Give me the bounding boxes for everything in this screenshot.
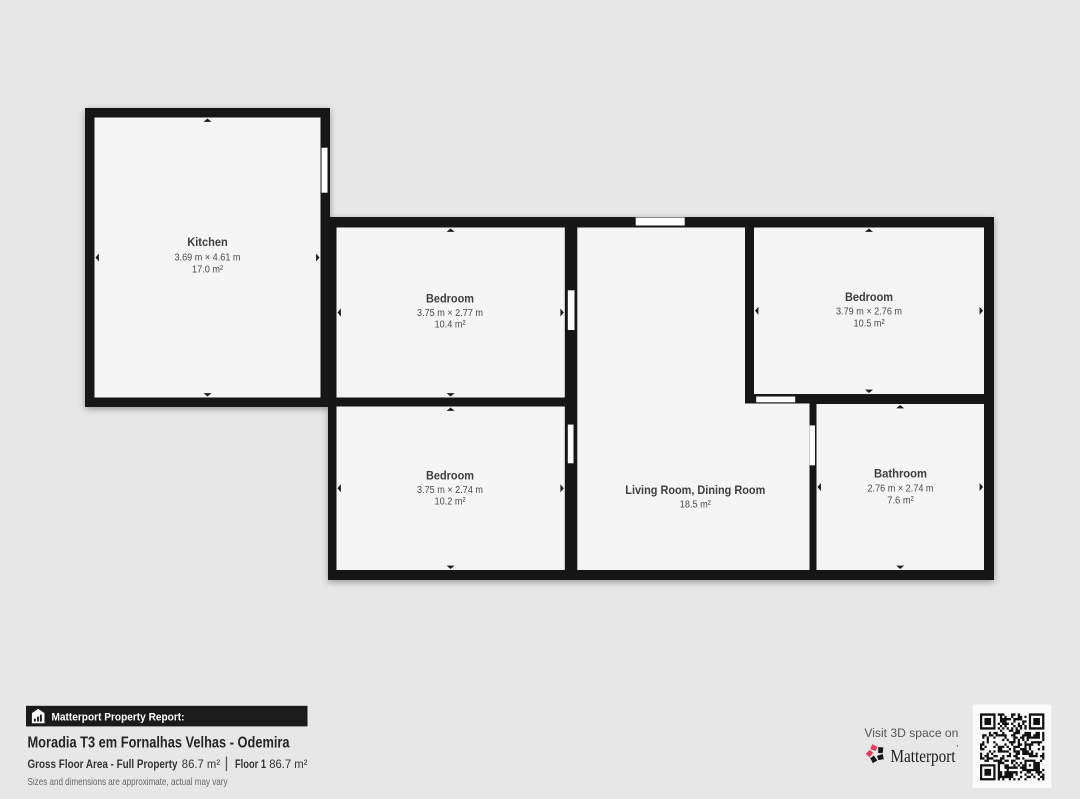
svg-text:86.7 m²: 86.7 m²: [269, 757, 307, 771]
svg-text:Bedroom: Bedroom: [426, 292, 474, 305]
svg-text:3.75 m × 2.77 m: 3.75 m × 2.77 m: [417, 308, 483, 319]
svg-text:17.0 m²: 17.0 m²: [192, 265, 224, 276]
svg-text:Visit 3D space on: Visit 3D space on: [864, 726, 958, 740]
svg-text:Kitchen: Kitchen: [187, 236, 228, 249]
svg-text:3.79 m × 2.76 m: 3.79 m × 2.76 m: [836, 307, 902, 318]
svg-text:10.5 m²: 10.5 m²: [854, 319, 886, 330]
svg-text:10.4 m²: 10.4 m²: [435, 320, 467, 331]
svg-text:2.76 m × 2.74 m: 2.76 m × 2.74 m: [868, 484, 934, 495]
svg-text:Bedroom: Bedroom: [845, 291, 893, 304]
svg-text:Matterport Property Report:: Matterport Property Report:: [52, 712, 185, 724]
svg-text:Bathroom: Bathroom: [874, 468, 927, 481]
svg-text:Moradia T3 em Fornalhas Velhas: Moradia T3 em Fornalhas Velhas - Odemira: [28, 734, 290, 751]
svg-text:10.2 m²: 10.2 m²: [435, 497, 467, 508]
svg-text:Floor 1: Floor 1: [235, 757, 266, 771]
svg-text:86.7 m²: 86.7 m²: [182, 757, 220, 771]
svg-text:7.6 m²: 7.6 m²: [887, 496, 914, 507]
svg-text:Bedroom: Bedroom: [426, 470, 474, 483]
svg-text:18.5 m²: 18.5 m²: [680, 500, 712, 511]
svg-text:Matterport: Matterport: [891, 746, 956, 766]
svg-text:Sizes and dimensions are appro: Sizes and dimensions are approximate, ac…: [28, 776, 229, 788]
svg-text:3.75 m × 2.74 m: 3.75 m × 2.74 m: [417, 485, 483, 496]
svg-text:Living Room, Dining Room: Living Room, Dining Room: [625, 484, 765, 497]
svg-text:3.69 m × 4.61 m: 3.69 m × 4.61 m: [175, 253, 241, 264]
svg-text:Gross Floor Area - Full Proper: Gross Floor Area - Full Property: [28, 757, 178, 771]
